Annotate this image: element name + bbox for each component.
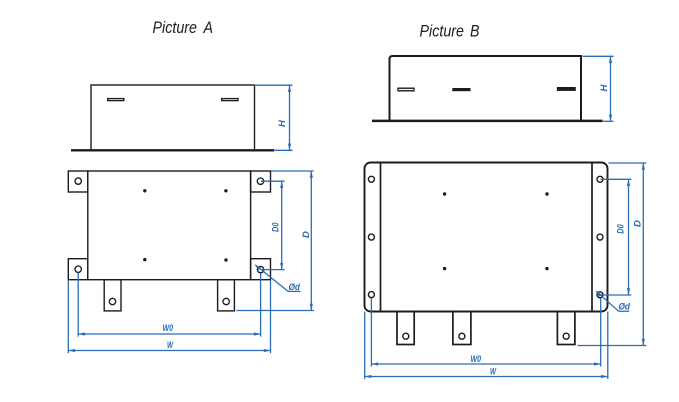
svg-text:W: W (490, 367, 497, 378)
svg-text:W0: W0 (471, 354, 482, 365)
svg-text:D0: D0 (270, 222, 281, 232)
svg-text:D: D (633, 220, 644, 227)
svg-text:D: D (301, 231, 312, 238)
svg-text:A: A (203, 19, 213, 37)
svg-text:B: B (470, 23, 480, 41)
svg-text:H: H (277, 119, 288, 127)
svg-text:W: W (167, 340, 174, 351)
svg-text:Ød: Ød (618, 301, 630, 312)
svg-text:Picture: Picture (153, 19, 198, 37)
svg-text:Picture: Picture (420, 23, 465, 41)
svg-text:Ød: Ød (288, 282, 300, 293)
svg-text:H: H (599, 83, 610, 91)
svg-text:W0: W0 (163, 323, 174, 334)
svg-text:D0: D0 (615, 224, 626, 234)
